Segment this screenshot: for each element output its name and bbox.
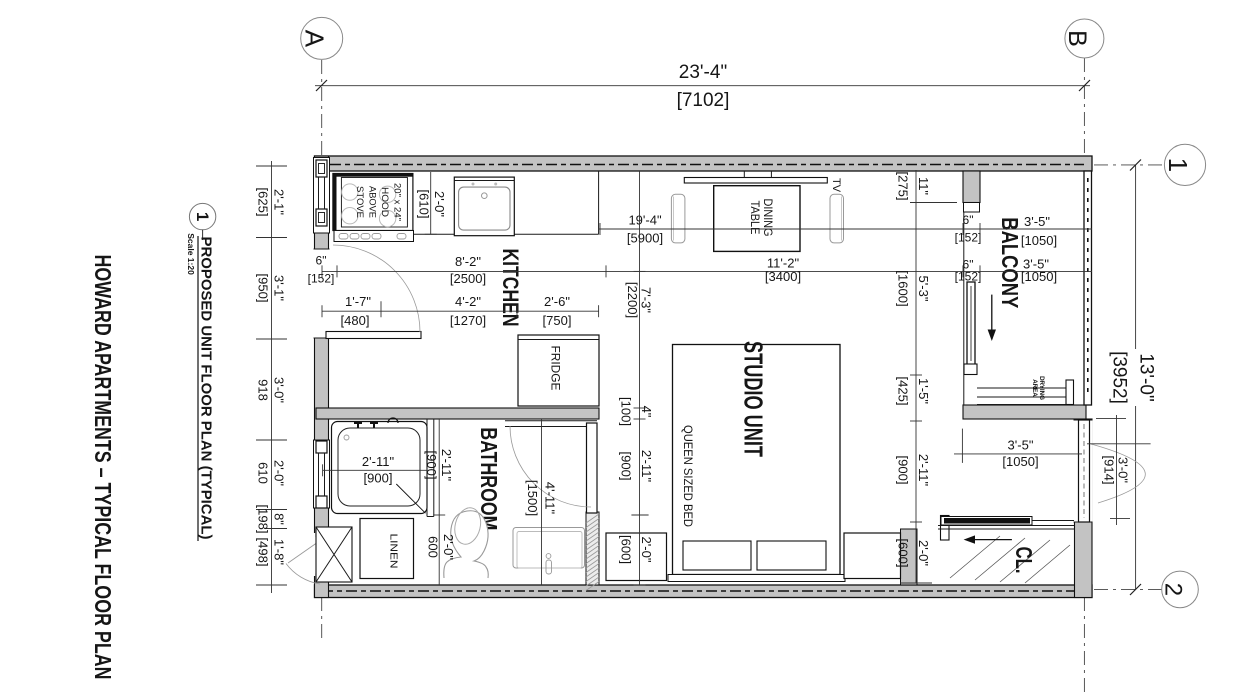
svg-text:3'-0": 3'-0" — [272, 377, 287, 403]
svg-text:19'-4": 19'-4" — [628, 213, 662, 228]
svg-text:Scale 1:20: Scale 1:20 — [186, 233, 196, 275]
svg-text:[5900]: [5900] — [627, 231, 663, 246]
svg-text:2'-0": 2'-0" — [639, 537, 654, 563]
svg-text:2: 2 — [1159, 583, 1186, 596]
svg-text:918: 918 — [256, 379, 271, 401]
svg-text:4'-2": 4'-2" — [455, 294, 481, 309]
svg-text:A: A — [300, 30, 330, 48]
svg-text:3'-5": 3'-5" — [1008, 437, 1034, 452]
svg-text:6": 6" — [316, 254, 327, 268]
svg-text:[498]: [498] — [256, 538, 271, 567]
svg-text:STOVE: STOVE — [355, 186, 365, 218]
svg-text:[480]: [480] — [341, 313, 370, 328]
svg-text:11": 11" — [916, 177, 931, 195]
svg-text:[1600]: [1600] — [896, 270, 911, 306]
svg-text:2'-11": 2'-11" — [639, 450, 654, 483]
svg-text:[900]: [900] — [364, 471, 393, 486]
svg-text:20" x 24": 20" x 24" — [393, 183, 403, 221]
svg-text:[100]: [100] — [619, 397, 634, 426]
svg-text:PROPOSED UNIT FLOOR PLAN (TYPI: PROPOSED UNIT FLOOR PLAN (TYPICAL) — [198, 237, 215, 540]
svg-text:8": 8" — [272, 513, 287, 525]
svg-text:2'-11": 2'-11" — [916, 454, 931, 487]
svg-text:B: B — [1063, 30, 1091, 47]
svg-text:[600]: [600] — [619, 535, 634, 564]
svg-text:STUDIO UNIT: STUDIO UNIT — [739, 341, 769, 457]
svg-text:2'-0": 2'-0" — [441, 534, 456, 560]
svg-text:8'-2": 8'-2" — [455, 254, 481, 269]
svg-text:2'-11": 2'-11" — [439, 449, 454, 482]
svg-text:2'-0": 2'-0" — [272, 460, 287, 486]
svg-text:13'-0": 13'-0" — [1136, 353, 1157, 401]
svg-text:[198]: [198] — [256, 505, 271, 534]
svg-text:[275]: [275] — [896, 172, 911, 201]
svg-text:3'-1": 3'-1" — [272, 275, 287, 301]
svg-text:[950]: [950] — [256, 274, 271, 303]
svg-text:DRYING: DRYING — [1038, 376, 1045, 400]
svg-text:KITCHEN: KITCHEN — [498, 249, 523, 327]
svg-text:ABOVE: ABOVE — [368, 186, 378, 218]
svg-text:[900]: [900] — [424, 451, 439, 480]
svg-text:2'-1": 2'-1" — [272, 189, 287, 215]
svg-text:2'-0": 2'-0" — [432, 191, 447, 217]
svg-text:[914]: [914] — [1102, 456, 1117, 485]
svg-text:1: 1 — [193, 212, 212, 221]
svg-text:1'-7": 1'-7" — [345, 294, 371, 309]
svg-text:6": 6" — [963, 213, 974, 227]
svg-text:600: 600 — [426, 536, 441, 558]
svg-text:CL.: CL. — [1011, 547, 1037, 574]
svg-text:TV: TV — [830, 178, 842, 193]
svg-text:2'-0": 2'-0" — [916, 540, 931, 566]
svg-text:[1050]: [1050] — [1021, 233, 1057, 248]
svg-text:4": 4" — [639, 406, 654, 418]
svg-text:[152]: [152] — [955, 231, 982, 245]
svg-text:[1050]: [1050] — [1002, 454, 1038, 469]
svg-text:2'-11": 2'-11" — [362, 454, 395, 469]
svg-text:HOOD: HOOD — [380, 187, 390, 218]
svg-text:[750]: [750] — [543, 313, 572, 328]
svg-text:3'-0": 3'-0" — [1116, 457, 1131, 483]
svg-text:1'-8": 1'-8" — [272, 539, 287, 565]
svg-text:FRIDGE: FRIDGE — [549, 346, 563, 391]
svg-text:[2200]: [2200] — [625, 282, 640, 318]
svg-text:QUEEN SIZED BED: QUEEN SIZED BED — [681, 425, 693, 527]
svg-text:[900]: [900] — [896, 456, 911, 485]
svg-text:LINEN: LINEN — [388, 534, 400, 569]
svg-text:[600]: [600] — [896, 539, 911, 568]
svg-text:[1500]: [1500] — [525, 480, 540, 516]
svg-text:610: 610 — [256, 462, 271, 484]
svg-text:AREA: AREA — [1031, 379, 1038, 397]
svg-text:4'-11": 4'-11" — [543, 482, 558, 515]
svg-text:23'-4": 23'-4" — [679, 62, 727, 83]
svg-text:DINING: DINING — [761, 199, 773, 237]
svg-text:[1050]: [1050] — [1021, 269, 1057, 284]
svg-text:[2500]: [2500] — [450, 271, 486, 286]
svg-text:1: 1 — [1163, 158, 1193, 172]
svg-text:[625]: [625] — [256, 188, 271, 217]
svg-text:[7102]: [7102] — [677, 90, 730, 111]
svg-text:3'-5": 3'-5" — [1024, 214, 1050, 229]
svg-text:BALCONY: BALCONY — [997, 217, 1023, 308]
svg-text:[900]: [900] — [619, 452, 634, 481]
svg-text:2'-6": 2'-6" — [544, 294, 570, 309]
svg-text:5'-3": 5'-3" — [916, 276, 931, 302]
svg-text:[1270]: [1270] — [450, 313, 486, 328]
svg-text:[3952]: [3952] — [1109, 351, 1130, 404]
svg-text:[152]: [152] — [955, 269, 982, 283]
svg-text:TABLE: TABLE — [748, 201, 760, 235]
svg-text:[425]: [425] — [896, 377, 911, 406]
svg-text:[3400]: [3400] — [765, 269, 801, 284]
svg-text:HOWARD APARTMENTS – TYPICAL FL: HOWARD APARTMENTS – TYPICAL FLOOR PLAN — [90, 255, 116, 680]
svg-text:[152]: [152] — [308, 272, 335, 286]
svg-text:1'-5": 1'-5" — [916, 378, 931, 404]
svg-text:[610]: [610] — [417, 190, 432, 219]
